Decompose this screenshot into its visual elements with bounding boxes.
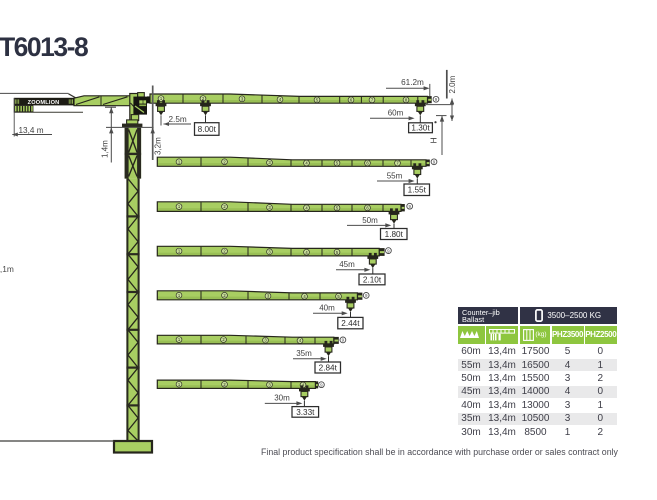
svg-text:2.5m: 2.5m [169,115,187,124]
svg-text:61.2m: 61.2m [401,78,424,87]
svg-text:55m: 55m [387,172,403,181]
svg-text:1.30t: 1.30t [411,124,430,133]
svg-text:2.10t: 2.10t [363,275,382,284]
svg-text:ZOOMLION: ZOOMLION [28,100,60,106]
svg-text:2.84t: 2.84t [319,363,338,372]
svg-text:35m: 35m [296,349,312,358]
svg-text:3.33t: 3.33t [296,408,315,417]
svg-text:3,2m: 3,2m [154,137,163,155]
svg-text:2.44t: 2.44t [341,319,360,328]
svg-text:45m: 45m [339,260,355,269]
svg-text:40m: 40m [319,304,335,313]
svg-text:40,1m: 40,1m [0,264,14,274]
svg-text:60m: 60m [388,109,404,118]
svg-text:13,4 m: 13,4 m [19,126,44,135]
svg-text:1.80t: 1.80t [385,230,404,239]
svg-text:2.0m: 2.0m [448,75,457,93]
svg-text:1.55t: 1.55t [408,186,427,195]
svg-text:50m: 50m [362,216,378,225]
svg-text:1,4m: 1,4m [101,140,110,158]
svg-text:30m: 30m [274,394,290,403]
svg-text:8.00t: 8.00t [198,125,217,134]
svg-text:H: H [429,137,439,143]
